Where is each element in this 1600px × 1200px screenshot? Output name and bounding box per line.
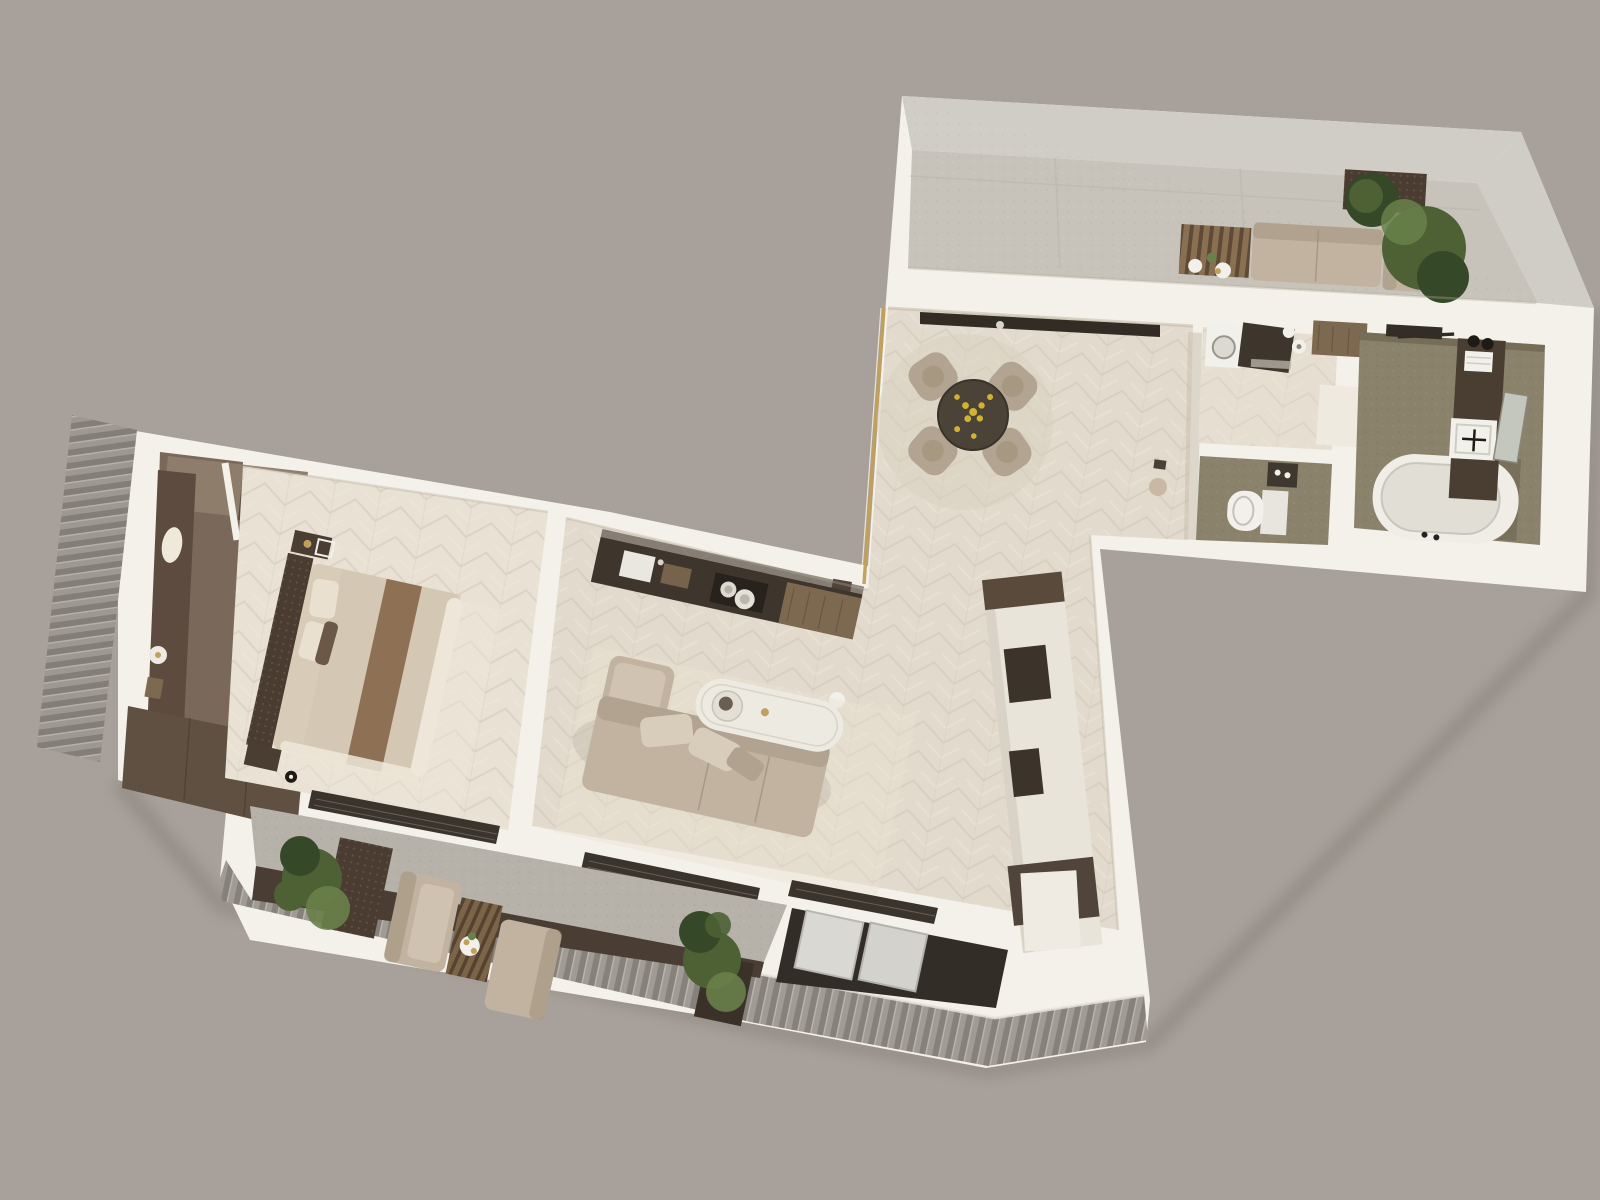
- pillow: [308, 578, 339, 619]
- cistern-panel: [1260, 490, 1288, 535]
- niche-shelf: [1267, 462, 1298, 488]
- wardrobe-niche: [1009, 748, 1044, 797]
- storage-box: [144, 677, 163, 699]
- floor-plan-render: [0, 0, 1600, 1200]
- wardrobe-niche: [1004, 645, 1052, 703]
- bathroom: [1354, 324, 1545, 546]
- bag: [1149, 478, 1167, 496]
- floor-plan-canvas: [0, 0, 1600, 1200]
- towels: [1464, 351, 1493, 373]
- balcony-plant: [705, 912, 731, 938]
- wall-cabinet: [1312, 320, 1368, 357]
- coat-hook: [1153, 459, 1166, 470]
- washer-door: [1212, 336, 1235, 359]
- glass-panel: [859, 923, 928, 992]
- glass-panel: [795, 911, 864, 980]
- tray-decor: [155, 652, 161, 658]
- sideboard-decor: [996, 321, 1004, 329]
- bush-highlight: [1381, 199, 1427, 245]
- balcony-plant: [306, 886, 350, 930]
- balcony-plant: [706, 972, 746, 1012]
- toss-cushion: [639, 713, 694, 748]
- palm-plant-core: [1349, 179, 1383, 213]
- open-cabinet-door: [1020, 870, 1080, 951]
- balcony-plant: [274, 879, 306, 911]
- balcony-plant: [280, 836, 320, 876]
- bush-shade: [1417, 251, 1469, 303]
- wc: [1196, 456, 1332, 545]
